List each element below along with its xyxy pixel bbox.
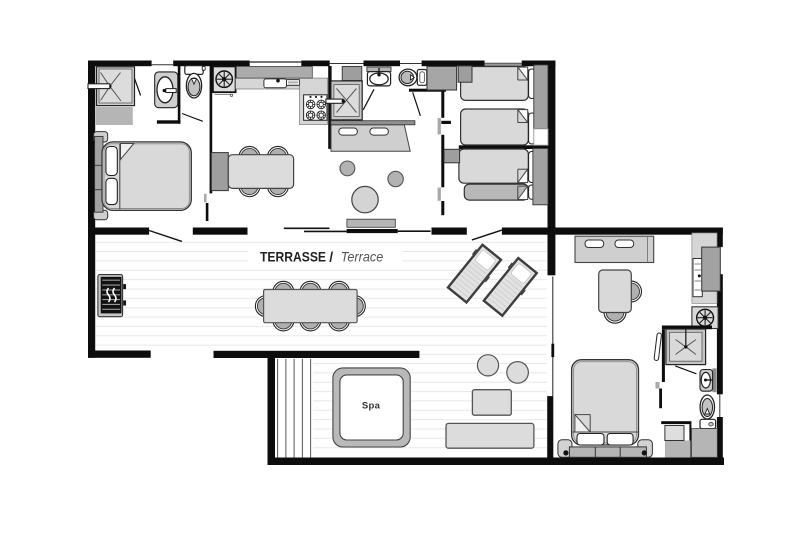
svg-text:Terrace: Terrace (341, 249, 384, 265)
svg-text:/: / (329, 249, 333, 265)
svg-text:Spa: Spa (362, 401, 381, 412)
svg-text:TERRASSE: TERRASSE (260, 249, 326, 265)
